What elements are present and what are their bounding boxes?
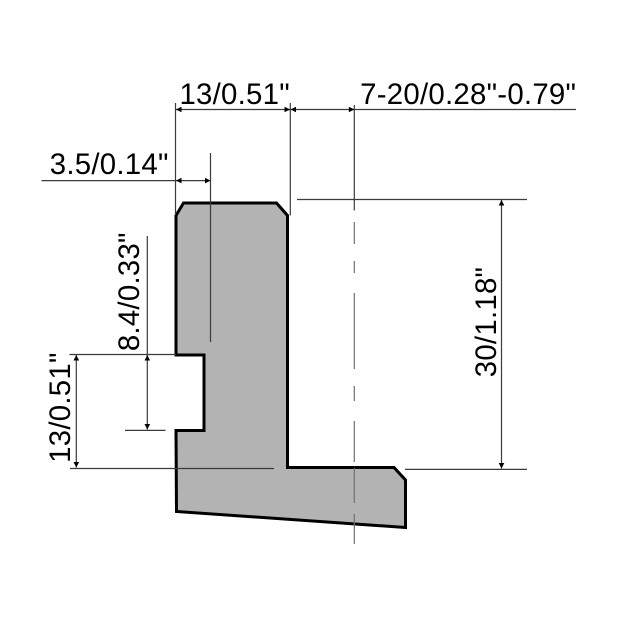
svg-text:13/0.51": 13/0.51" (179, 78, 290, 111)
svg-text:13/0.51": 13/0.51" (44, 352, 77, 463)
svg-text:8.4/0.33": 8.4/0.33" (113, 232, 146, 351)
svg-text:7-20/0.28"-0.79": 7-20/0.28"-0.79" (360, 78, 576, 111)
svg-text:3.5/0.14": 3.5/0.14" (50, 148, 169, 181)
svg-text:30/1.18": 30/1.18" (470, 267, 503, 378)
